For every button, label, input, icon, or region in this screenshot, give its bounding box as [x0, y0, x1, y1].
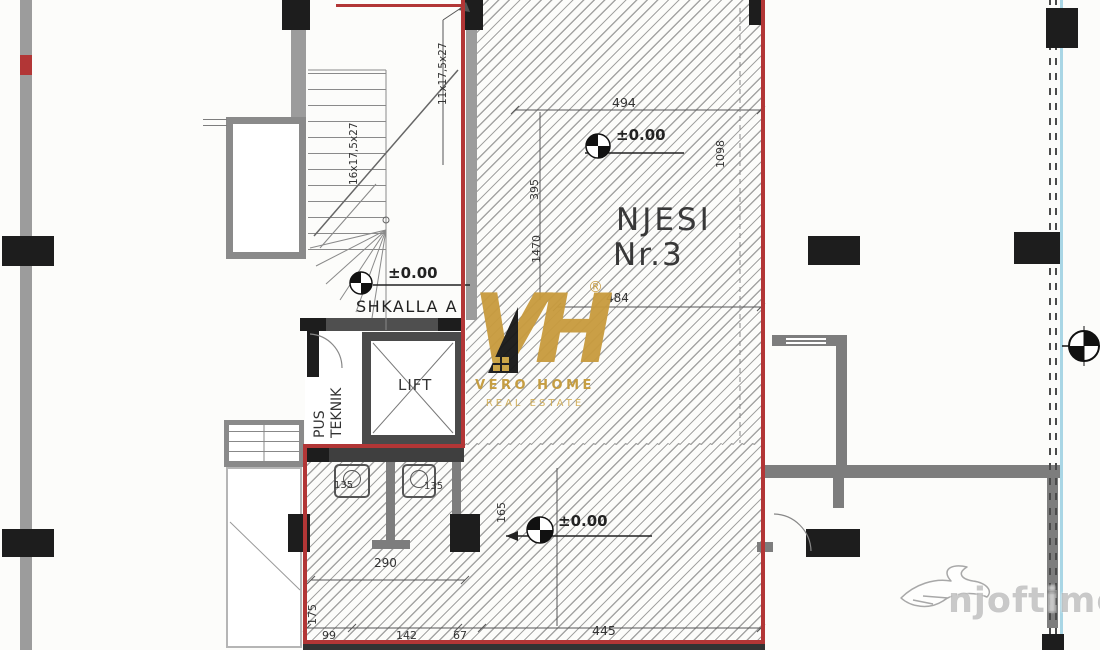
dim-strip-b: 142 — [396, 629, 417, 642]
dim-v-lower-left: 175 — [306, 604, 319, 625]
level-value-hall: ±0.00 — [558, 512, 608, 530]
floor-plan: NJESI Nr.3 SHKALLA A ±0.00 ±0.00 ±0.00 L… — [0, 0, 1100, 650]
dim-strip-a: 99 — [322, 629, 336, 642]
dim-v-total: 1470 — [530, 235, 543, 263]
logo-tagline: REAL ESTATE — [486, 398, 584, 409]
logo-name: VERO HOME — [475, 378, 595, 393]
stair-room-label: SHKALLA A — [356, 297, 458, 316]
level-value-stair: ±0.00 — [388, 264, 438, 282]
dim-v-right: 1098 — [714, 140, 727, 168]
dim-stall-right: 135 — [424, 481, 443, 492]
left-facade-red-tick — [20, 55, 32, 75]
dim-strip-c: 67 — [453, 629, 467, 642]
lift-label: LIFT — [398, 376, 432, 394]
dim-v-upper: 395 — [528, 179, 541, 200]
dim-bottom-width: 445 — [592, 623, 616, 638]
vero-home-logo: VH ® VERO HOME REAL ESTATE — [455, 262, 630, 422]
dim-top-width: 494 — [612, 95, 636, 110]
level-value-entry: ±0.00 — [616, 126, 666, 144]
stair-spec-left: 16x17,5x27 — [348, 122, 360, 185]
dim-wc-width: 290 — [374, 556, 397, 570]
logo-registered-mark: ® — [588, 278, 603, 296]
unit-boundary — [336, 4, 462, 7]
unit-boundary — [303, 444, 465, 448]
unit-name-line1: NJESI — [616, 202, 712, 238]
survey-point-icon — [1062, 326, 1100, 366]
stair-spec-right: 11x17,5x27 — [437, 42, 449, 105]
dim-v-wc: 165 — [495, 502, 508, 523]
unit-boundary — [761, 0, 765, 644]
dim-stall-left: 135 — [334, 480, 353, 491]
portal-watermark: njoftime.al — [948, 581, 1100, 621]
unit-boundary — [303, 640, 765, 644]
shaft-label: PUS TEKNIK — [312, 334, 346, 438]
